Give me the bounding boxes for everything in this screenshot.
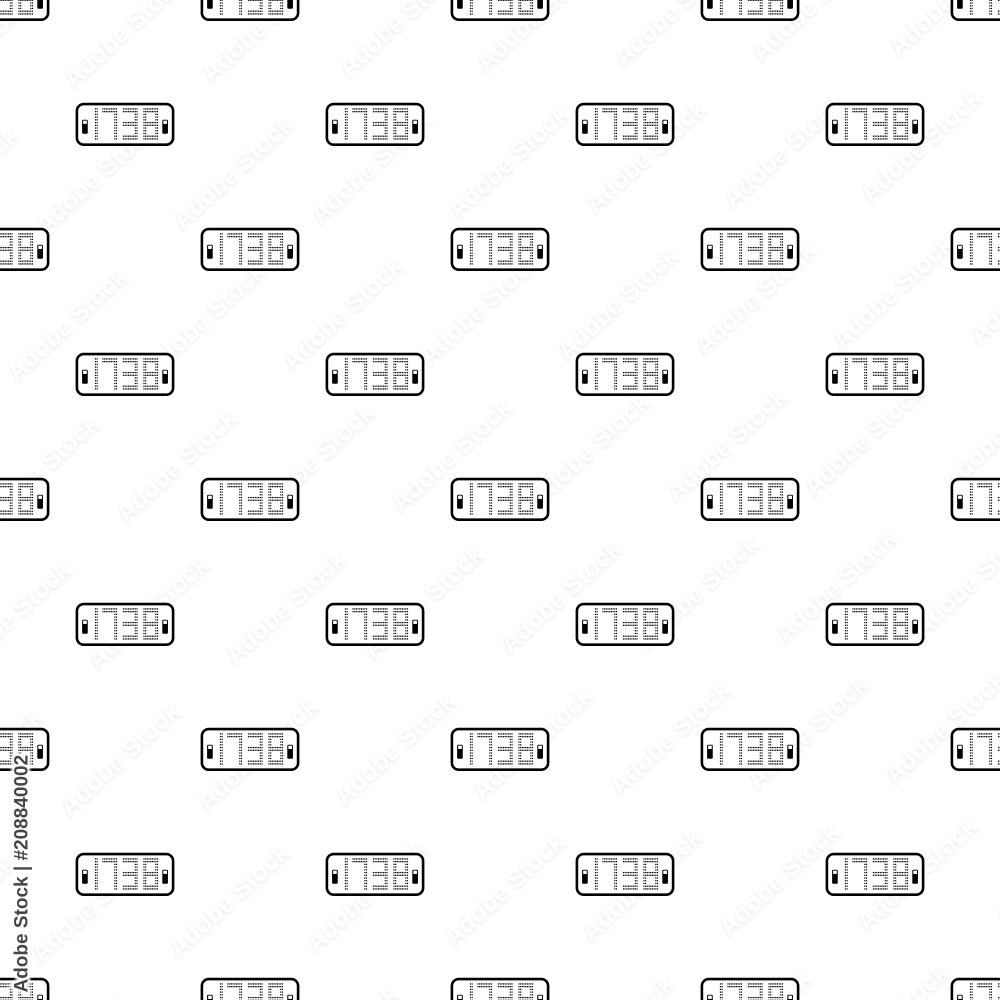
- svg-text:Adobe Stock | #208840002: Adobe Stock | #208840002: [11, 755, 32, 993]
